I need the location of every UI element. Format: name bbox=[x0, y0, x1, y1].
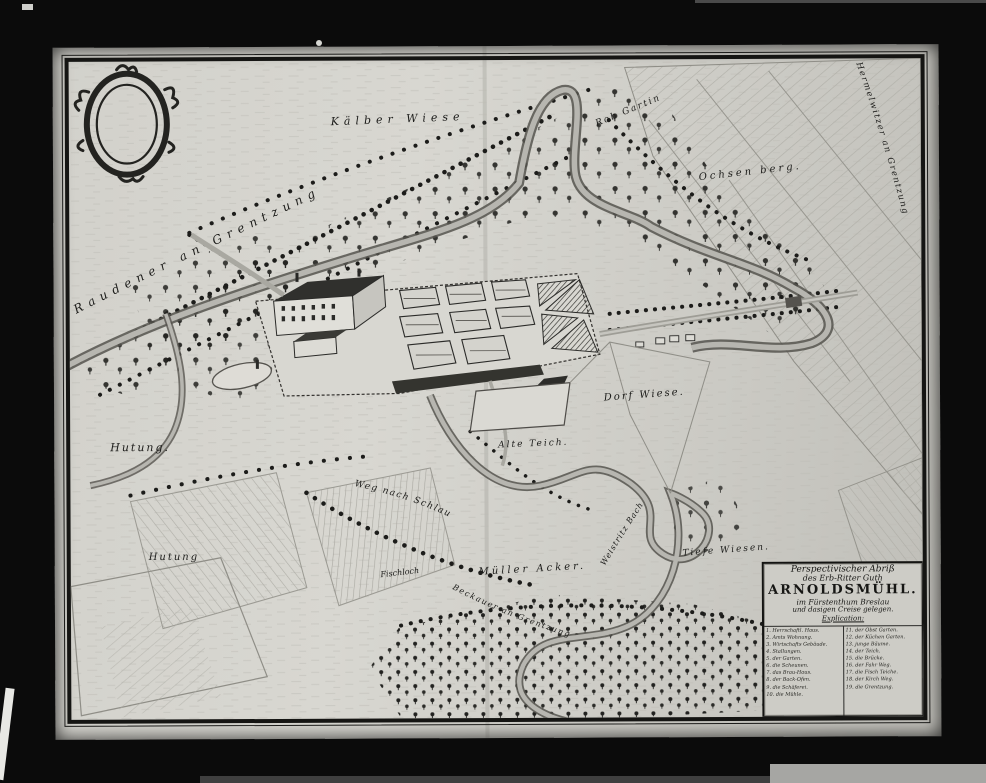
alte-teich-pond bbox=[470, 383, 570, 432]
scan-sliver-left bbox=[0, 688, 15, 780]
map-sheet: Raudener an Grentzung Kälber Wiese Rob G… bbox=[52, 44, 941, 740]
scan-speck-top-left bbox=[22, 4, 33, 10]
legend-item: 10. die Mühle. bbox=[766, 691, 841, 698]
estate-name: ARNOLDSMÜHL. bbox=[767, 583, 919, 599]
manor-chimney-2 bbox=[357, 268, 360, 276]
manor-chimney bbox=[295, 273, 298, 282]
legend-table: 1. Herrschaftl. Haus. 2. Amts Wohnung. 3… bbox=[764, 625, 922, 716]
scan-line-top-right bbox=[695, 0, 986, 3]
legend-left-column: 1. Herrschaftl. Haus. 2. Amts Wohnung. 3… bbox=[764, 626, 843, 716]
scan-strip-bottom-right bbox=[770, 764, 986, 783]
scan-speck-small bbox=[316, 40, 322, 46]
pond-statue bbox=[256, 360, 259, 369]
legend-right-column: 11. der Obst Garten. 12. der Küchen Gart… bbox=[843, 626, 923, 716]
explication-heading: Explication: bbox=[767, 614, 919, 624]
legend-item: 19. die Grentzung. bbox=[846, 684, 921, 691]
label-hutung-west: Hutung. bbox=[109, 441, 170, 454]
map-border-frame: Raudener an Grentzung Kälber Wiese Rob G… bbox=[65, 54, 928, 724]
title-box-header: Perspectivischer Abriß des Erb-Ritter Gu… bbox=[764, 563, 922, 624]
title-cartouche-box: Perspectivischer Abriß des Erb-Ritter Gu… bbox=[762, 561, 924, 717]
label-hutung-south: Hutung bbox=[148, 552, 199, 563]
